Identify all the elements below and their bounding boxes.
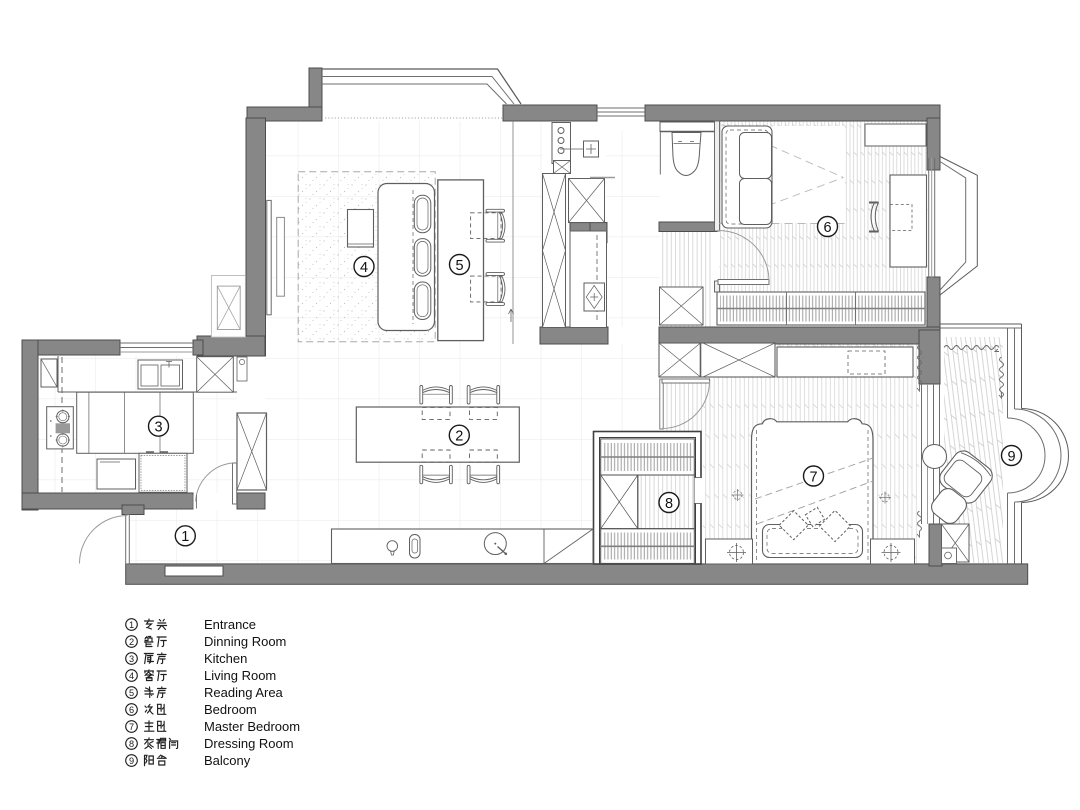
svg-text:3: 3 bbox=[154, 420, 162, 436]
svg-text:2: 2 bbox=[455, 429, 463, 445]
svg-text:5: 5 bbox=[455, 258, 463, 274]
svg-text:Balcony: Balcony bbox=[204, 753, 251, 768]
svg-text:8: 8 bbox=[665, 496, 673, 512]
svg-text:Entrance: Entrance bbox=[204, 617, 256, 632]
svg-text:9: 9 bbox=[1007, 449, 1015, 465]
svg-text:6: 6 bbox=[129, 705, 134, 715]
svg-text:7: 7 bbox=[129, 722, 134, 732]
svg-text:7: 7 bbox=[809, 469, 817, 485]
svg-text:Dinning Room: Dinning Room bbox=[204, 634, 286, 649]
svg-text:6: 6 bbox=[823, 220, 831, 236]
svg-text:Kitchen: Kitchen bbox=[204, 651, 247, 666]
svg-text:9: 9 bbox=[129, 756, 134, 766]
svg-text:Dressing Room: Dressing Room bbox=[204, 736, 294, 751]
svg-text:4: 4 bbox=[129, 671, 134, 681]
svg-text:Master Bedroom: Master Bedroom bbox=[204, 719, 300, 734]
svg-text:Living Room: Living Room bbox=[204, 668, 276, 683]
svg-text:8: 8 bbox=[129, 739, 134, 749]
svg-text:1: 1 bbox=[129, 620, 134, 630]
svg-text:3: 3 bbox=[129, 654, 134, 664]
svg-text:1: 1 bbox=[181, 529, 189, 545]
svg-text:4: 4 bbox=[360, 260, 368, 276]
svg-text:5: 5 bbox=[129, 688, 134, 698]
svg-text:Reading Area: Reading Area bbox=[204, 685, 284, 700]
svg-text:Bedroom: Bedroom bbox=[204, 702, 257, 717]
svg-text:2: 2 bbox=[129, 637, 134, 647]
